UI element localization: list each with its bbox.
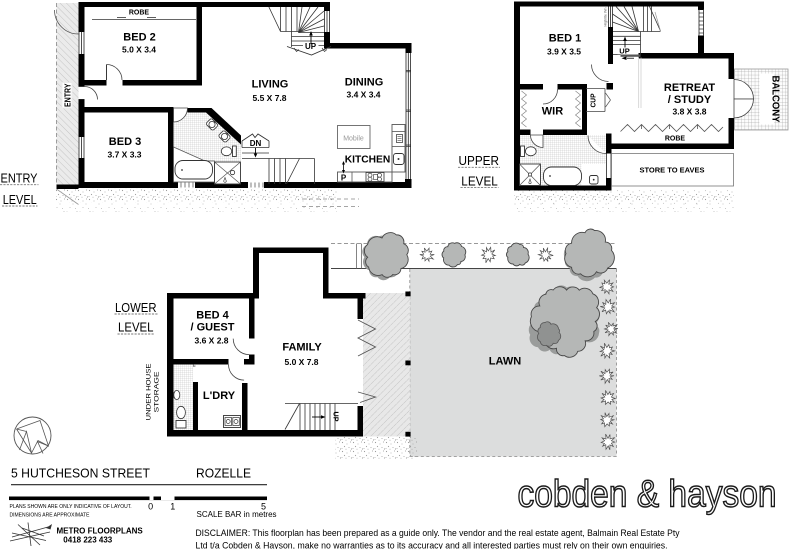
svg-text:3.6 X 2.8: 3.6 X 2.8 [194, 336, 228, 346]
svg-text:0418 223 433: 0418 223 433 [63, 536, 112, 545]
svg-text:UP: UP [332, 412, 339, 422]
svg-text:ROBE: ROBE [665, 136, 686, 143]
svg-text:5.5 X 7.8: 5.5 X 7.8 [252, 93, 286, 103]
svg-text:BALCONY: BALCONY [770, 76, 781, 123]
svg-text:BED 1: BED 1 [549, 33, 581, 45]
svg-text:5.0 X 7.8: 5.0 X 7.8 [284, 357, 318, 367]
svg-text:BED 2: BED 2 [123, 32, 155, 44]
svg-text:Mobile: Mobile [343, 136, 364, 143]
svg-text:0: 0 [148, 502, 153, 512]
svg-text:P: P [341, 174, 347, 183]
svg-text:L'DRY: L'DRY [203, 390, 236, 402]
svg-text:STORAGE: STORAGE [155, 372, 161, 413]
svg-text:METRO FLOORPLANS: METRO FLOORPLANS [57, 527, 144, 536]
svg-text:LEVEL: LEVEL [3, 192, 37, 207]
svg-text:ENTRY: ENTRY [63, 83, 73, 107]
svg-text:FAMILY: FAMILY [282, 342, 322, 354]
svg-text:DISCLAIMER: This floorplan has: DISCLAIMER: This floorplan has been prep… [196, 528, 681, 538]
svg-text:ROZELLE: ROZELLE [196, 466, 251, 481]
svg-text:3.4 X 3.4: 3.4 X 3.4 [346, 90, 380, 100]
svg-text:STORE TO EAVES: STORE TO EAVES [639, 166, 704, 175]
svg-text:3.8 X 3.8: 3.8 X 3.8 [672, 107, 706, 117]
svg-text:WIR: WIR [542, 106, 563, 118]
svg-text:3.7 X 3.3: 3.7 X 3.3 [107, 150, 141, 160]
svg-text:5.0 X 3.4: 5.0 X 3.4 [122, 45, 156, 55]
svg-text:CUP: CUP [591, 93, 598, 107]
svg-text:BED 3: BED 3 [109, 136, 141, 148]
svg-text:5 HUTCHESON STREET: 5 HUTCHESON STREET [11, 466, 150, 481]
svg-text:SCALE BAR in metres: SCALE BAR in metres [197, 510, 277, 519]
svg-text:BED 4: BED 4 [196, 310, 229, 322]
svg-text:LEVEL: LEVEL [461, 173, 498, 188]
svg-text:Ltd t/a Cobden & Hayson, make: Ltd t/a Cobden & Hayson, make no warrant… [196, 540, 668, 549]
svg-text:UPPER: UPPER [459, 153, 500, 168]
svg-text:LOWER: LOWER [115, 300, 157, 315]
svg-text:LIVING: LIVING [252, 79, 289, 91]
svg-text:3.9 X 3.5: 3.9 X 3.5 [547, 47, 581, 57]
svg-text:KITCHEN: KITCHEN [345, 154, 391, 166]
svg-text:/ GUEST: / GUEST [190, 322, 234, 334]
svg-text:UP: UP [619, 47, 629, 56]
svg-text:ROBE: ROBE [129, 10, 150, 17]
svg-text:Highlite Wn: Highlite Wn [603, 8, 608, 27]
svg-text:PLANS SHOWN ARE ONLY INDICATIV: PLANS SHOWN ARE ONLY INDICATIVE OF LAYOU… [10, 504, 132, 510]
svg-text:1: 1 [170, 502, 175, 512]
svg-text:LAWN: LAWN [489, 356, 521, 368]
svg-text:ENTRY: ENTRY [1, 171, 38, 186]
svg-text:RETREAT: RETREAT [664, 82, 715, 94]
svg-text:UNDER HOUSE: UNDER HOUSE [147, 364, 153, 421]
svg-text:/ STUDY: / STUDY [668, 94, 712, 106]
svg-text:DIMENSIONS ARE APPROXIMATE: DIMENSIONS ARE APPROXIMATE [10, 513, 91, 519]
svg-text:LEVEL: LEVEL [118, 320, 154, 335]
svg-text:DN: DN [250, 139, 262, 148]
svg-text:cobden & hayson: cobden & hayson [518, 474, 777, 516]
svg-text:DINING: DINING [345, 77, 384, 89]
